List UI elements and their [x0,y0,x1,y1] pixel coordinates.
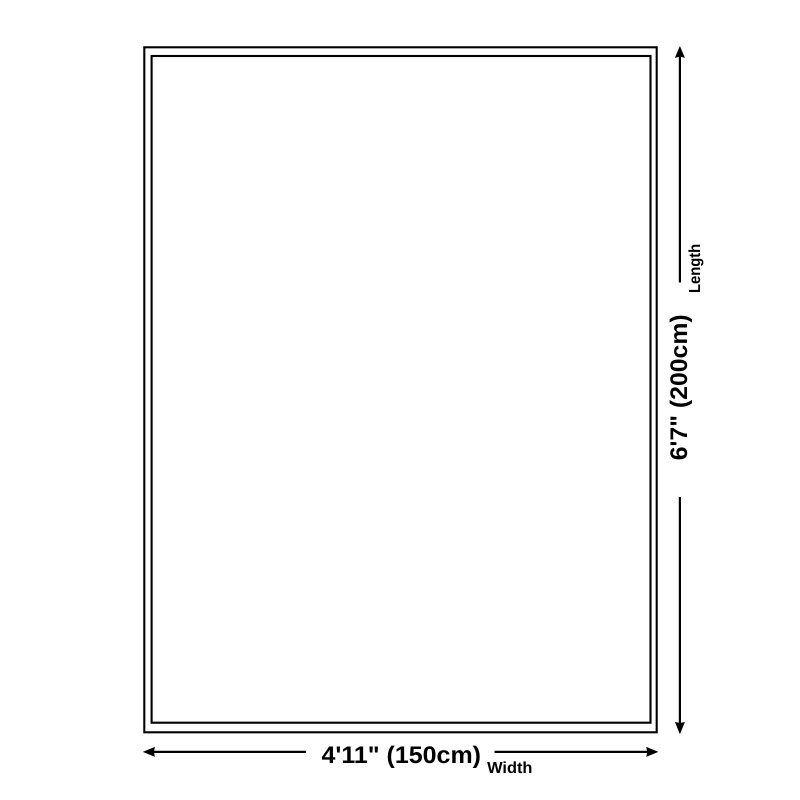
svg-text:6'7" (200cm): 6'7" (200cm) [666,314,693,460]
svg-text:Width: Width [487,760,532,777]
svg-text:Length: Length [687,244,704,293]
svg-text:4'11" (150cm): 4'11" (150cm) [322,742,482,769]
